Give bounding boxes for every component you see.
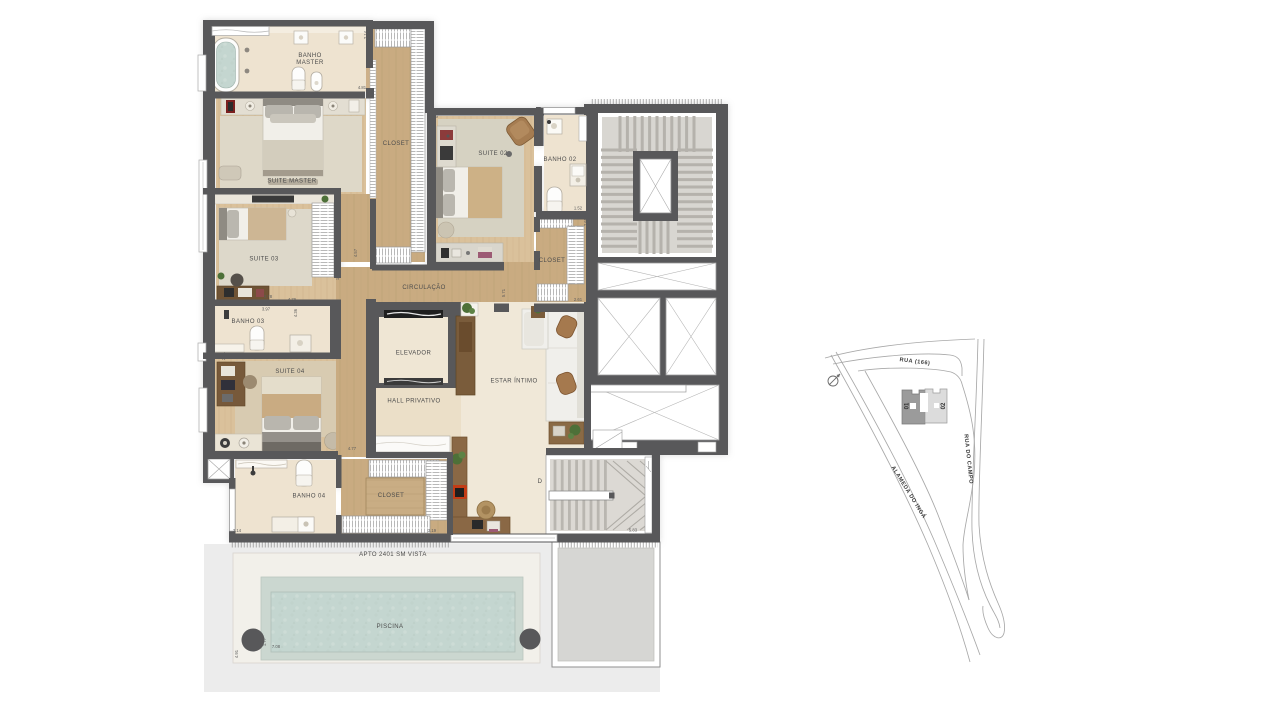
svg-text:SUITE 02: SUITE 02: [478, 151, 507, 157]
svg-text:BANHO 04: BANHO 04: [293, 494, 326, 500]
svg-text:7.08: 7.08: [272, 644, 281, 649]
svg-text:HALL PRIVATIVO: HALL PRIVATIVO: [387, 399, 440, 405]
svg-text:CLOSET: CLOSET: [539, 258, 565, 264]
svg-text:4.36: 4.36: [293, 308, 298, 317]
svg-text:01: 01: [905, 402, 911, 409]
svg-text:4.57: 4.57: [353, 248, 358, 257]
svg-text:4.81: 4.81: [358, 85, 367, 90]
svg-text:4.77: 4.77: [348, 446, 357, 451]
svg-text:3.13: 3.13: [206, 103, 211, 112]
svg-text:SUITE 04: SUITE 04: [275, 369, 304, 375]
svg-text:1.44: 1.44: [205, 307, 210, 316]
svg-text:2.48: 2.48: [448, 460, 453, 469]
svg-text:5.71: 5.71: [501, 288, 506, 297]
svg-text:3.13: 3.13: [445, 110, 454, 115]
svg-text:4.02: 4.02: [210, 181, 215, 190]
svg-text:BANHO 03: BANHO 03: [232, 319, 265, 325]
svg-text:CIRCULAÇÃO: CIRCULAÇÃO: [402, 284, 445, 291]
svg-text:1.96: 1.96: [371, 399, 376, 408]
svg-text:3.19: 3.19: [428, 528, 437, 533]
svg-text:2.34: 2.34: [221, 351, 226, 360]
svg-text:PISCINA: PISCINA: [377, 624, 404, 630]
svg-text:MASTER: MASTER: [296, 60, 324, 66]
svg-text:2.65: 2.65: [583, 217, 588, 226]
svg-text:APTO 2401 SM VISTA: APTO 2401 SM VISTA: [359, 552, 427, 558]
svg-text:5.83: 5.83: [629, 528, 638, 533]
svg-text:BANHO 02: BANHO 02: [544, 157, 577, 163]
svg-text:2.47: 2.47: [337, 460, 342, 469]
svg-text:ESTAR ÍNTIMO: ESTAR ÍNTIMO: [490, 378, 537, 385]
svg-text:2.14: 2.14: [363, 30, 368, 39]
svg-text:CLOSET: CLOSET: [378, 493, 404, 499]
svg-text:BANHO: BANHO: [298, 53, 321, 59]
svg-text:SUITE MASTER: SUITE MASTER: [267, 179, 316, 185]
svg-text:6.82: 6.82: [586, 315, 591, 324]
svg-text:4.95: 4.95: [434, 109, 439, 118]
svg-text:3.14: 3.14: [233, 528, 242, 533]
svg-text:02: 02: [941, 402, 947, 409]
svg-text:4.79: 4.79: [288, 297, 297, 302]
svg-text:7.61: 7.61: [425, 31, 430, 40]
svg-text:4.91: 4.91: [234, 649, 239, 658]
svg-text:1.12: 1.12: [335, 271, 340, 280]
svg-text:1.52: 1.52: [574, 206, 583, 211]
svg-text:1.77: 1.77: [262, 637, 267, 646]
svg-text:SUITE 03: SUITE 03: [249, 257, 278, 263]
svg-text:2.61: 2.61: [574, 297, 583, 302]
svg-text:3.97: 3.97: [262, 307, 271, 312]
svg-text:ELEVADOR: ELEVADOR: [396, 351, 432, 357]
svg-text:CLOSET: CLOSET: [383, 141, 409, 147]
svg-text:3.78: 3.78: [264, 294, 273, 299]
svg-text:D: D: [538, 479, 543, 485]
